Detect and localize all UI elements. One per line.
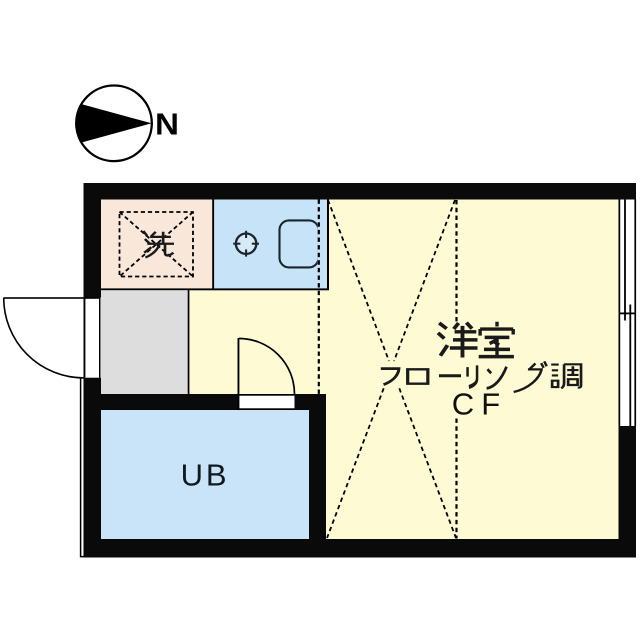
- svg-text:N: N: [155, 107, 179, 142]
- svg-text:C: C: [452, 387, 474, 422]
- svg-text:U: U: [181, 458, 203, 493]
- svg-text:B: B: [206, 458, 227, 493]
- svg-text:F: F: [481, 387, 500, 422]
